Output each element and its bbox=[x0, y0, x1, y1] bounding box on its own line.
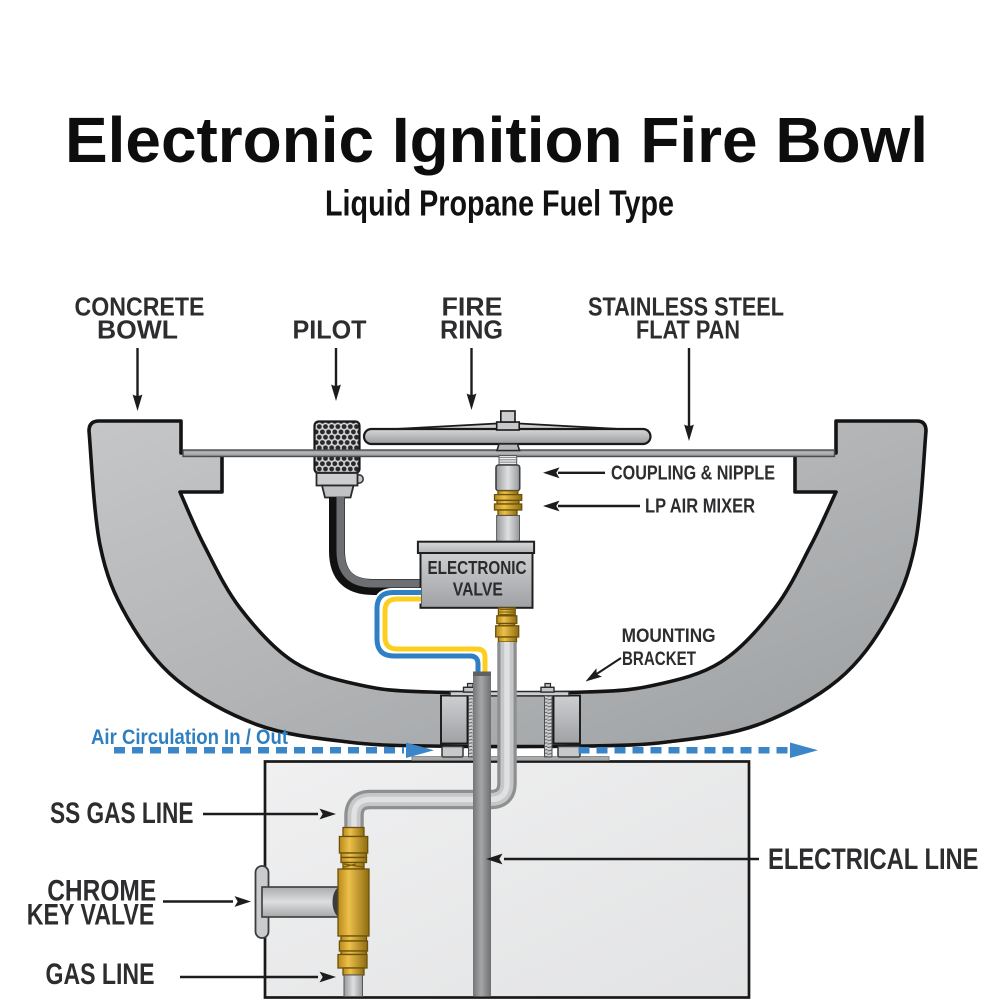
svg-text:MOUNTING: MOUNTING bbox=[622, 625, 716, 647]
svg-text:PILOT: PILOT bbox=[293, 315, 367, 345]
svg-text:BRACKET: BRACKET bbox=[622, 648, 696, 670]
svg-text:RING: RING bbox=[440, 315, 503, 345]
svg-text:Air Circulation In / Out: Air Circulation In / Out bbox=[91, 726, 288, 749]
svg-text:Electronic Ignition Fire Bowl: Electronic Ignition Fire Bowl bbox=[65, 104, 928, 176]
svg-text:SS GAS LINE: SS GAS LINE bbox=[50, 797, 194, 830]
svg-text:BOWL: BOWL bbox=[97, 315, 178, 345]
svg-text:FLAT PAN: FLAT PAN bbox=[636, 315, 740, 345]
svg-text:ELECTRONIC: ELECTRONIC bbox=[428, 558, 527, 578]
svg-text:Liquid Propane Fuel Type: Liquid Propane Fuel Type bbox=[325, 183, 674, 224]
svg-text:VALVE: VALVE bbox=[453, 580, 503, 600]
svg-text:COUPLING & NIPPLE: COUPLING & NIPPLE bbox=[611, 463, 775, 485]
svg-text:LP AIR MIXER: LP AIR MIXER bbox=[645, 496, 755, 518]
svg-text:GAS LINE: GAS LINE bbox=[46, 958, 155, 991]
svg-text:KEY VALVE: KEY VALVE bbox=[27, 899, 154, 932]
svg-text:ELECTRICAL LINE: ELECTRICAL LINE bbox=[768, 843, 979, 876]
